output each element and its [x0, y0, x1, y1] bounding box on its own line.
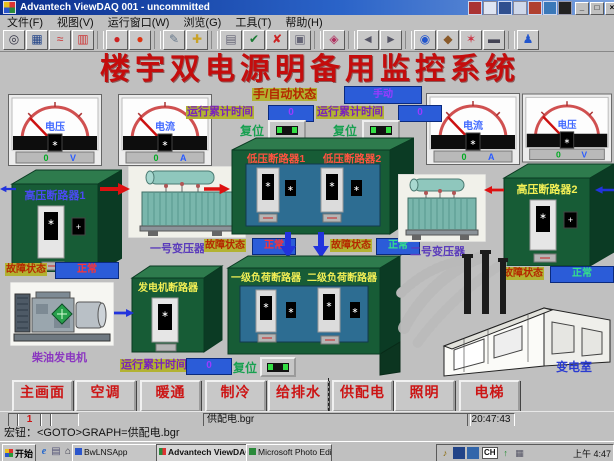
menu-file[interactable]: 文件(F) — [0, 14, 50, 30]
svg-text:∗: ∗ — [288, 306, 295, 315]
updater-icon[interactable]: ↑ — [500, 447, 512, 459]
svg-text:∗: ∗ — [352, 306, 359, 315]
svg-text:∗: ∗ — [564, 136, 570, 145]
status-bar: 1 供配电.bgr 20:47:43 — [0, 411, 614, 427]
flow-arrow-left-icon — [595, 184, 614, 196]
transformer-2-image — [398, 174, 486, 242]
macro-status-line: 宏钮：<GOTO>GRAPH=供配电.bgr — [0, 426, 614, 441]
reset-label-3: 复位 — [233, 359, 257, 376]
title-bar: Advantech ViewDAQ 001 - uncommitted _ □ … — [0, 0, 614, 15]
fault-status-label: 故障状态 — [5, 263, 47, 276]
task-icon — [159, 448, 166, 455]
volume-icon[interactable]: ♪ — [439, 447, 451, 459]
monitor-icon[interactable] — [453, 447, 465, 459]
diesel-generator-image — [10, 282, 114, 346]
runtime-value-2: 0 — [398, 105, 442, 122]
generator-label: 柴油发电机 — [32, 349, 87, 365]
nav-button-power[interactable]: 供配电 — [332, 380, 393, 412]
meter-unit: V — [581, 150, 587, 160]
start-label: 开始 — [15, 447, 33, 460]
flow-arrow-left-icon — [484, 184, 504, 196]
svg-text:∗: ∗ — [329, 180, 336, 189]
page-title: 楼宇双电源明备用监控系统 — [88, 44, 532, 88]
voltage-meter-1: 电压 ∗ 0 V — [8, 94, 102, 166]
panel-icon[interactable]: ▦ — [26, 30, 48, 50]
runtime-label-2: 运行累计时间 — [316, 106, 384, 119]
meter-label: 电压 — [557, 119, 577, 131]
svg-text:∗: ∗ — [47, 217, 55, 227]
fault-status-label: 故障状态 — [330, 239, 372, 252]
flow-arrow-right-icon — [100, 183, 130, 195]
taskbar-clock: 上午 4:47 — [573, 447, 611, 460]
runtime-label-1: 运行累计时间 — [186, 106, 254, 119]
meter-unit: V — [70, 153, 76, 163]
substation-label: 变电室 — [556, 358, 592, 375]
nav-button-water[interactable]: 给排水 — [268, 380, 329, 412]
focus-dashed-line — [328, 378, 330, 411]
scheduler-icon[interactable]: ▦ — [514, 447, 526, 459]
window-controls: _ □ × — [575, 2, 614, 15]
windows-taskbar: 开始 e ▤ ⌂ BwLNSApp Advantech ViewDAQ 001.… — [0, 441, 614, 461]
task-icon — [75, 448, 82, 455]
meter-value: 0 — [556, 150, 561, 160]
svg-text:∗: ∗ — [162, 139, 169, 148]
nav-button-main[interactable]: 主画面 — [12, 380, 73, 412]
channels-icon[interactable]: ▤ — [50, 445, 62, 459]
titlebar-shortcut-icon[interactable] — [468, 1, 482, 15]
task-button-bwlnsapp[interactable]: BwLNSApp — [72, 444, 158, 461]
task-button-photo-editor[interactable]: Microsoft Photo Editor ... — [246, 444, 332, 461]
panel-title: 高压断路器2 — [516, 182, 577, 196]
lv-breaker-panel: 低压断路器1 低压断路器2 ∗ ∗ ∗ ∗ — [228, 134, 414, 236]
panel-title: 低压断路器1 — [246, 152, 305, 165]
nav-button-heating[interactable]: 暖通 — [140, 380, 201, 412]
panel-title: 高压断路器1 — [24, 188, 85, 202]
runtime-value-3: 0 — [186, 358, 232, 375]
titlebar-shortcut-icon[interactable] — [528, 1, 542, 15]
trend-chart-icon[interactable]: ≈ — [49, 30, 71, 50]
close-button[interactable]: × — [605, 2, 614, 15]
current-meter-1: 电流 ∗ 0 A — [118, 94, 212, 166]
scada-screen: Advantech ViewDAQ 001 - uncommitted _ □ … — [0, 0, 614, 461]
titlebar-shortcut-icon[interactable] — [483, 1, 497, 15]
transformer-1-label: 一号变压器 — [150, 240, 205, 256]
svg-text:+: + — [568, 215, 573, 225]
network-icon[interactable] — [467, 447, 479, 459]
svg-text:∗: ∗ — [265, 180, 272, 189]
flow-arrow-left-icon — [0, 183, 16, 195]
svg-text:∗: ∗ — [326, 300, 333, 309]
svg-text:∗: ∗ — [287, 184, 294, 193]
menu-help[interactable]: 帮助(H) — [278, 14, 329, 30]
titlebar-shortcut-icon[interactable] — [543, 1, 557, 15]
meter-unit: A — [488, 152, 495, 162]
panel-title: 一级负荷断路器 — [231, 271, 302, 284]
svg-text:∗: ∗ — [161, 309, 169, 319]
menu-tools[interactable]: 工具(T) — [228, 14, 278, 30]
svg-text:+: + — [76, 222, 81, 232]
fault-status-label: 故障状态 — [204, 239, 246, 252]
fault-status-value: 正常 — [55, 262, 119, 279]
runtime-label-3: 运行累计时间 — [120, 359, 188, 372]
menu-run-window[interactable]: 运行窗口(W) — [101, 14, 177, 30]
meter-unit: A — [180, 153, 187, 163]
generator-breaker-panel: 发电机断路器 ∗ — [128, 262, 224, 360]
meter-label: 电流 — [155, 120, 175, 133]
menu-bar: 文件(F) 视图(V) 运行窗口(W) 浏览(G) 工具(T) 帮助(H) — [0, 15, 614, 30]
panel-title: 二级负荷断路器 — [307, 271, 378, 284]
status-graph-name: 供配电.bgr — [203, 413, 471, 427]
svg-text:∗: ∗ — [263, 301, 270, 310]
flow-arrow-right-icon — [114, 306, 134, 320]
maximize-button[interactable]: □ — [590, 2, 604, 15]
zoom-icon[interactable]: ◎ — [3, 30, 25, 50]
quick-launch: e ▤ ⌂ — [38, 445, 74, 459]
svg-text:∗: ∗ — [52, 139, 59, 148]
window-title: Advantech ViewDAQ 001 - uncommitted — [20, 2, 210, 13]
status-page-number: 1 — [17, 413, 42, 427]
meter-label: 电压 — [45, 120, 65, 133]
ie-icon[interactable]: e — [38, 445, 50, 459]
titlebar-shortcut-icon[interactable] — [558, 1, 572, 15]
nav-button-cooling[interactable]: 制冷 — [205, 380, 266, 412]
ime-language-indicator[interactable]: CH — [482, 447, 498, 459]
panel-title: 低压断路器2 — [322, 152, 381, 165]
flow-arrow-right-icon — [204, 183, 230, 195]
voltage-meter-2: 电压 ∗ 0 V — [522, 90, 612, 166]
svg-text:∗: ∗ — [353, 184, 360, 193]
meter-value: 0 — [461, 152, 466, 162]
current-meter-2: 电流 ∗ 0 A — [426, 92, 520, 166]
mode-label: 手/自动状态 — [252, 88, 317, 101]
menu-browse[interactable]: 浏览(G) — [176, 14, 228, 30]
nav-button-hvac-ac[interactable]: 空调 — [75, 380, 136, 412]
nav-button-elevator[interactable]: 电梯 — [459, 380, 520, 412]
svg-text:∗: ∗ — [539, 211, 547, 221]
nav-button-lighting[interactable]: 照明 — [394, 380, 455, 412]
reset-button-3[interactable] — [260, 357, 296, 377]
breaker-button[interactable] — [156, 344, 176, 351]
task-button-viewdaq[interactable]: Advantech ViewDAQ 001... — [156, 444, 248, 461]
windows-logo-icon — [5, 449, 13, 457]
titlebar-shortcut-icon[interactable] — [498, 1, 512, 15]
system-tray: ♪ CH ↑ ▦ 上午 4:47 — [436, 444, 614, 461]
mode-value-box: 手动 — [344, 86, 422, 104]
meter-value: 0 — [153, 153, 158, 163]
task-icon — [249, 448, 256, 455]
minimize-button[interactable]: _ — [575, 2, 589, 15]
titlebar-shortcuts — [468, 1, 572, 15]
menu-view[interactable]: 视图(V) — [50, 14, 101, 30]
titlebar-shortcut-icon[interactable] — [513, 1, 527, 15]
app-icon — [3, 1, 16, 14]
meter-label: 电流 — [463, 119, 483, 132]
status-cell — [50, 413, 79, 427]
start-button[interactable]: 开始 — [2, 444, 36, 461]
meter-value: 0 — [43, 153, 48, 163]
panel-title: 发电机断路器 — [137, 281, 199, 294]
status-clock: 20:47:43 — [467, 413, 515, 427]
svg-text:∗: ∗ — [470, 138, 477, 147]
